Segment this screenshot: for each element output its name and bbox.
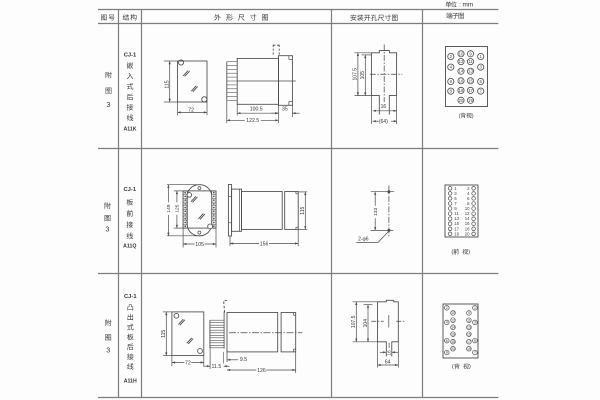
svg-text:11.5: 11.5 bbox=[212, 364, 222, 370]
svg-text:19: 19 bbox=[468, 98, 473, 103]
svg-text:115: 115 bbox=[164, 80, 170, 88]
svg-text:18: 18 bbox=[451, 340, 455, 344]
svg-text:mm: mm bbox=[462, 2, 473, 9]
svg-text:18: 18 bbox=[459, 88, 464, 93]
svg-text:15: 15 bbox=[468, 78, 473, 83]
svg-text:16: 16 bbox=[387, 350, 392, 356]
svg-text:20: 20 bbox=[451, 347, 455, 351]
svg-text:107.5: 107.5 bbox=[353, 68, 359, 81]
svg-text:7: 7 bbox=[474, 351, 476, 355]
svg-text:CJ-1: CJ-1 bbox=[124, 52, 137, 58]
svg-text:149: 149 bbox=[166, 204, 172, 212]
svg-text:12: 12 bbox=[459, 59, 464, 64]
svg-text:1: 1 bbox=[474, 306, 476, 310]
svg-text:20: 20 bbox=[459, 98, 464, 103]
svg-text:72: 72 bbox=[185, 360, 191, 366]
svg-text:15: 15 bbox=[467, 332, 471, 336]
svg-text:122.5: 122.5 bbox=[246, 118, 259, 124]
svg-text:16: 16 bbox=[381, 104, 387, 110]
svg-text:115: 115 bbox=[300, 207, 306, 215]
svg-text:107.5: 107.5 bbox=[351, 315, 357, 328]
svg-text:6: 6 bbox=[446, 339, 448, 343]
svg-text:72: 72 bbox=[188, 108, 194, 114]
svg-text:4: 4 bbox=[446, 321, 448, 325]
svg-text:): ) bbox=[469, 364, 471, 370]
svg-text:126: 126 bbox=[257, 368, 266, 374]
svg-text:5: 5 bbox=[474, 339, 476, 343]
svg-text:105: 105 bbox=[360, 71, 366, 80]
svg-text:19: 19 bbox=[467, 347, 471, 351]
svg-text:64: 64 bbox=[385, 359, 391, 365]
svg-text:(: ( bbox=[459, 113, 461, 119]
svg-text:9: 9 bbox=[468, 311, 470, 315]
svg-text:CJ-1: CJ-1 bbox=[124, 187, 137, 193]
svg-text:100.5: 100.5 bbox=[250, 107, 263, 113]
svg-text:104: 104 bbox=[363, 319, 369, 328]
svg-text:): ) bbox=[472, 113, 474, 119]
svg-text:13: 13 bbox=[468, 69, 473, 74]
svg-text:3: 3 bbox=[106, 347, 110, 354]
svg-text:(: ( bbox=[452, 364, 454, 370]
svg-text:2: 2 bbox=[446, 306, 448, 310]
svg-text:3: 3 bbox=[106, 227, 110, 234]
svg-text:CJ-1: CJ-1 bbox=[124, 294, 137, 300]
svg-text:20: 20 bbox=[465, 231, 470, 236]
svg-text:19: 19 bbox=[454, 231, 459, 236]
svg-text:11: 11 bbox=[468, 59, 473, 64]
svg-text:): ) bbox=[468, 250, 470, 256]
svg-text:2-φ6: 2-φ6 bbox=[358, 237, 369, 243]
svg-text:17: 17 bbox=[467, 340, 471, 344]
svg-text:16: 16 bbox=[459, 78, 464, 83]
svg-text:16: 16 bbox=[451, 332, 455, 336]
svg-text:105: 105 bbox=[195, 242, 204, 248]
svg-text:10: 10 bbox=[451, 311, 455, 315]
svg-text:3: 3 bbox=[474, 321, 476, 325]
svg-text:A11K: A11K bbox=[124, 127, 137, 133]
svg-text:133: 133 bbox=[373, 208, 379, 216]
svg-text:9.5: 9.5 bbox=[240, 357, 247, 363]
svg-text:3: 3 bbox=[107, 102, 111, 109]
svg-text:17: 17 bbox=[468, 88, 473, 93]
svg-text:125: 125 bbox=[175, 204, 181, 212]
svg-text:156: 156 bbox=[260, 241, 269, 247]
svg-text:14: 14 bbox=[451, 325, 455, 329]
svg-text:8: 8 bbox=[446, 351, 448, 355]
svg-text:(: ( bbox=[451, 250, 453, 256]
svg-text:12: 12 bbox=[451, 318, 455, 322]
svg-text:A11H: A11H bbox=[124, 378, 137, 384]
svg-text:11: 11 bbox=[467, 318, 471, 322]
svg-text:115: 115 bbox=[161, 330, 167, 338]
svg-text:14: 14 bbox=[459, 69, 464, 74]
svg-text:A11Q: A11Q bbox=[123, 243, 136, 249]
svg-text:10: 10 bbox=[459, 51, 464, 56]
svg-text:(64): (64) bbox=[379, 119, 388, 125]
svg-text:13: 13 bbox=[467, 325, 471, 329]
svg-text:35: 35 bbox=[282, 106, 288, 112]
